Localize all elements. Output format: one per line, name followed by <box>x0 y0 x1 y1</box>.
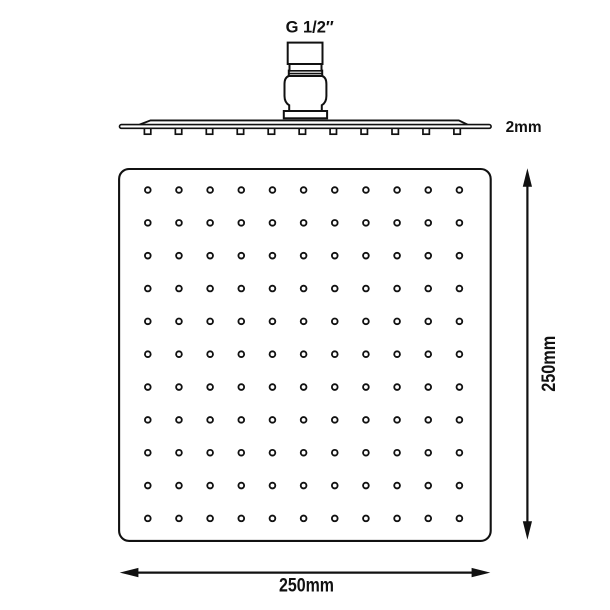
svg-text:G 1/2″: G 1/2″ <box>286 18 334 36</box>
svg-text:250mm: 250mm <box>279 576 334 597</box>
svg-text:250mm: 250mm <box>538 336 560 392</box>
svg-text:2mm: 2mm <box>506 119 542 136</box>
